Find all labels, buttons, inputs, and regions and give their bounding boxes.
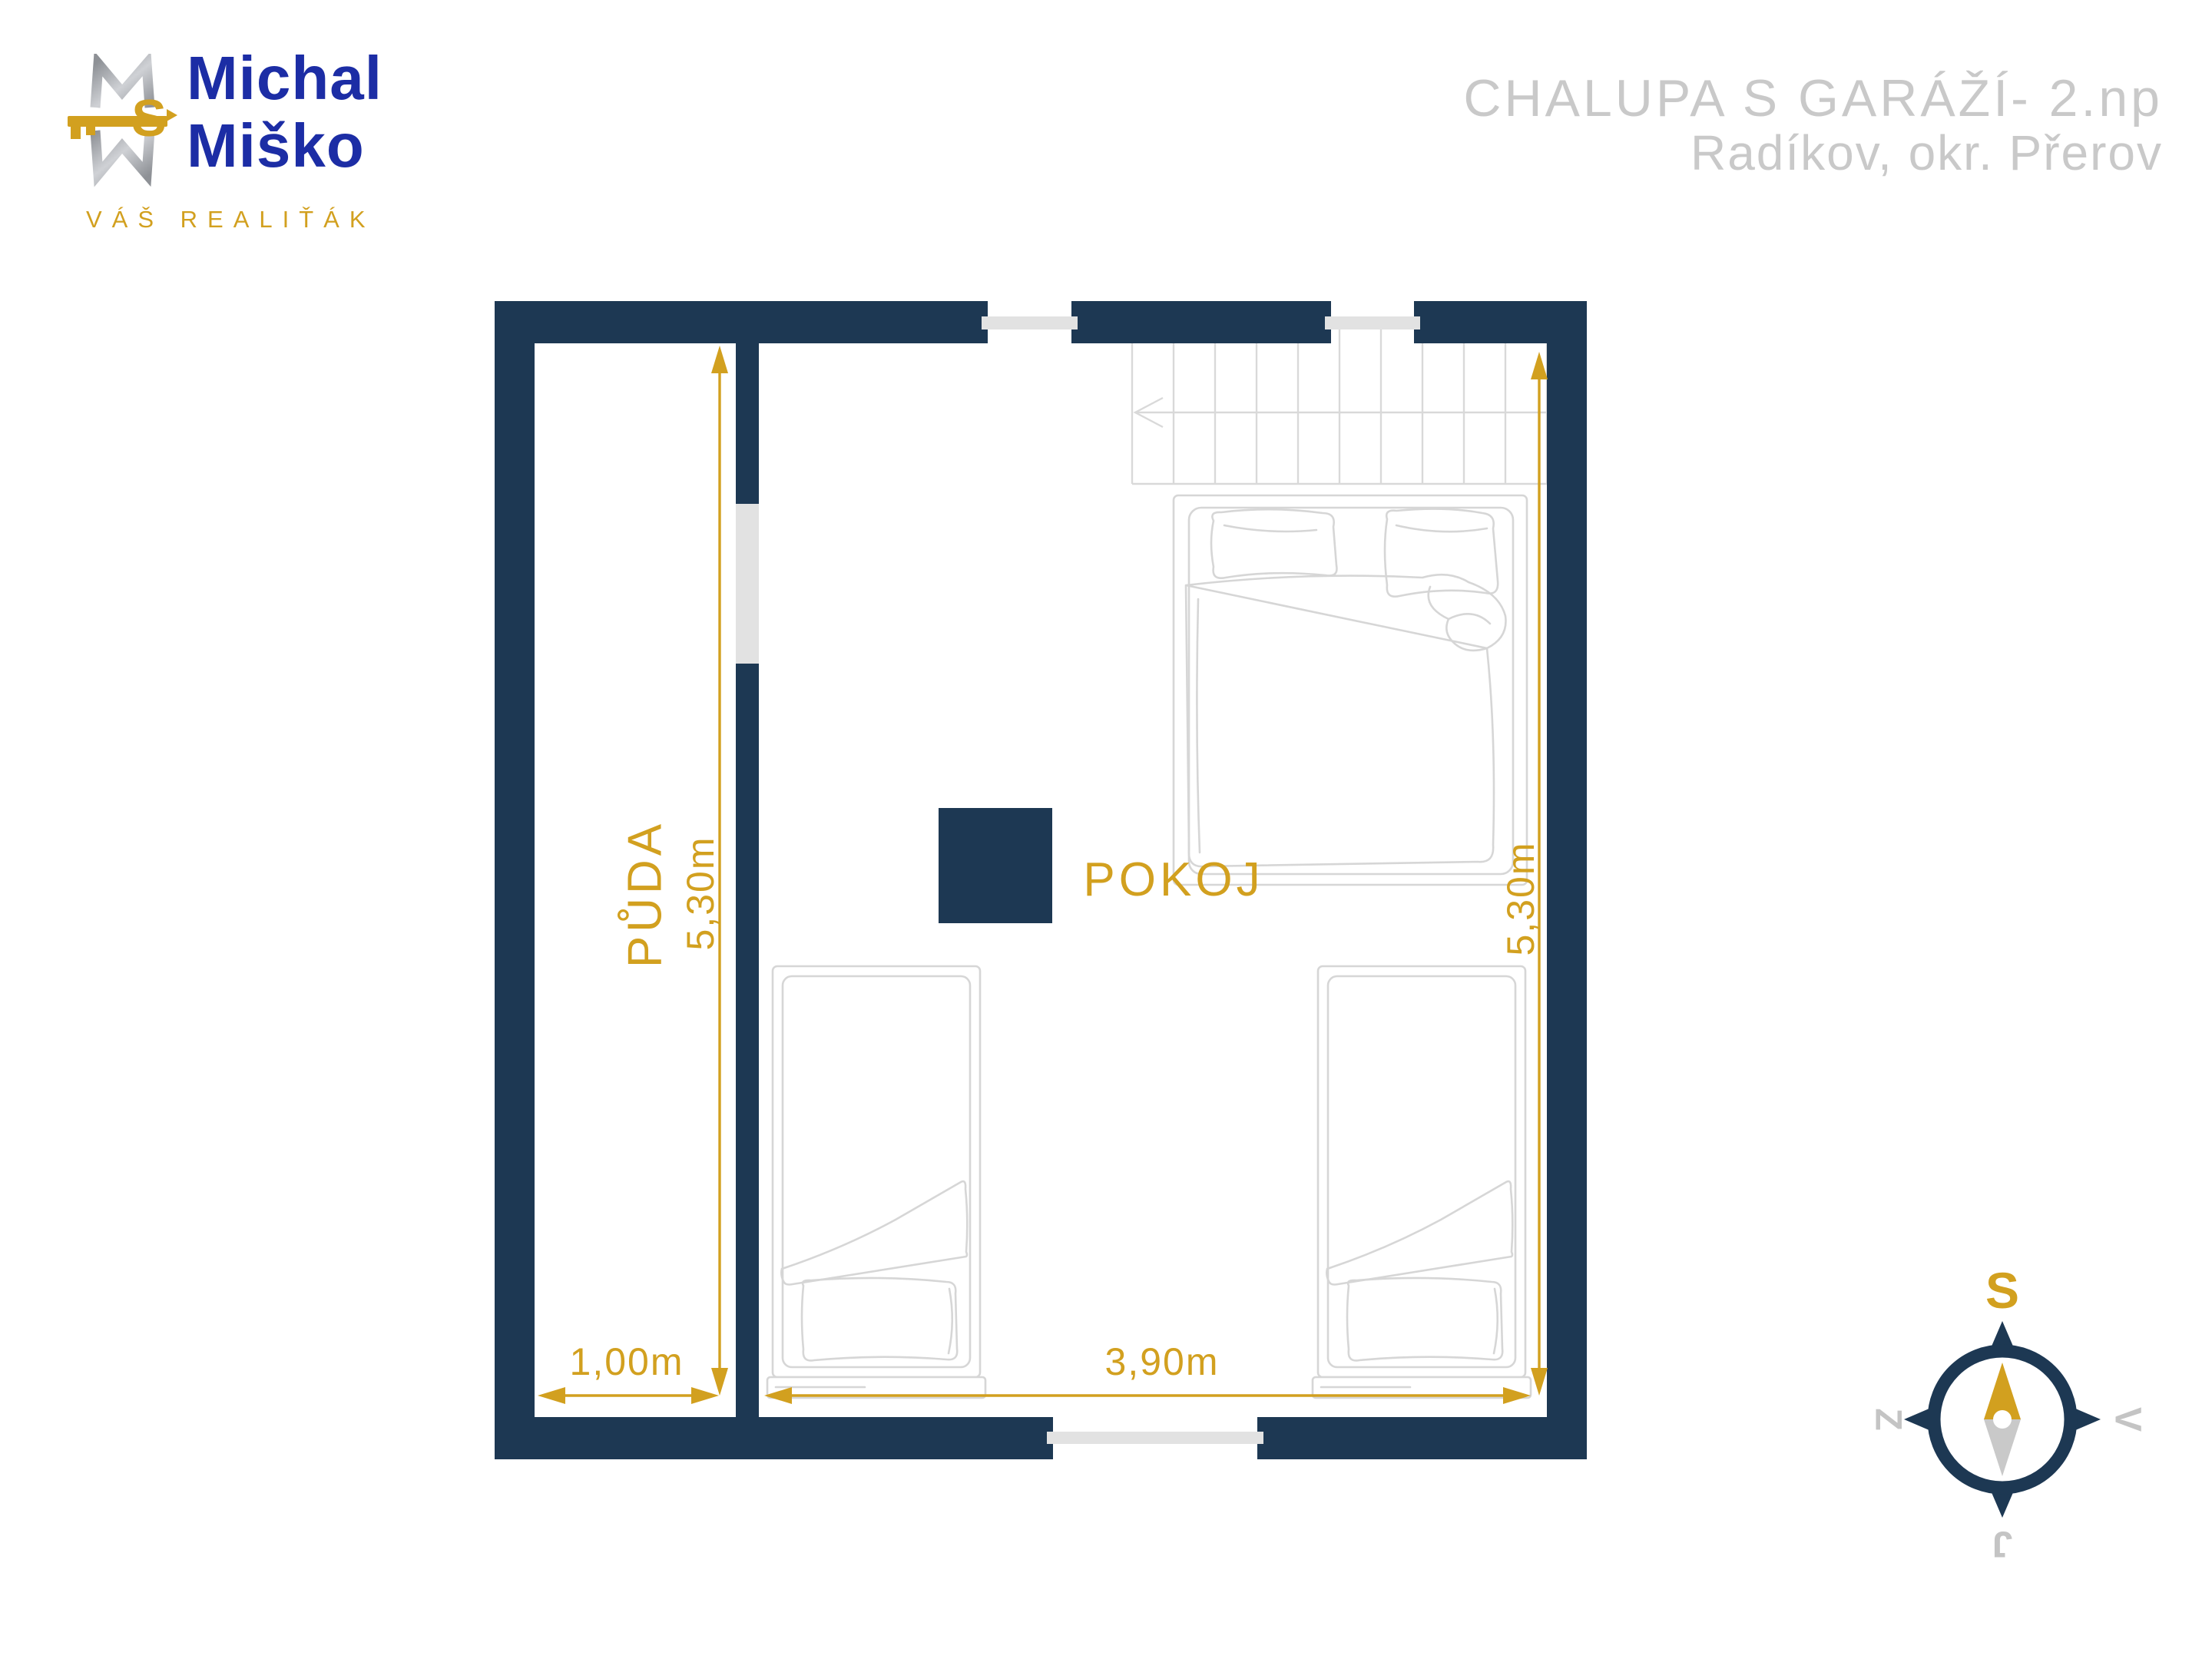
single-bed-left xyxy=(767,966,985,1398)
wall-bottom-segment-2 xyxy=(1257,1417,1587,1459)
dimension-label-pokoj-width: 3,90m xyxy=(1105,1340,1220,1383)
window-bottom xyxy=(1047,1432,1263,1444)
wall-left xyxy=(495,301,535,1459)
room-label-puda: PŮDA xyxy=(618,820,672,968)
single-bed-right xyxy=(1313,966,1531,1398)
chimney xyxy=(939,808,1052,923)
interior-opening xyxy=(736,504,759,664)
floorplan-page: S Michal Miško VÁŠ REALIŤÁK CHALUPA S GA… xyxy=(0,0,2212,1659)
window-top-left xyxy=(982,316,1078,329)
window-top-right xyxy=(1325,316,1420,329)
stairs-direction-arrow xyxy=(1135,398,1547,427)
dimension-label-puda-height: 5,30m xyxy=(679,836,722,951)
wall-top-segment-1 xyxy=(495,301,988,343)
compass-label-south: J xyxy=(1992,1524,2013,1565)
wall-top-segment-2 xyxy=(1071,301,1331,343)
compass-rose: S Z V J xyxy=(1868,1262,2148,1565)
room-label-pokoj: POKOJ xyxy=(1083,853,1263,906)
dimension-label-pokoj-height: 5,30m xyxy=(1499,842,1542,956)
double-bed xyxy=(1174,495,1527,885)
compass-label-north: S xyxy=(1985,1262,2019,1319)
wall-right xyxy=(1547,301,1587,1459)
dimension-label-puda-width: 1,00m xyxy=(570,1340,684,1383)
compass-hub xyxy=(1993,1410,2012,1429)
compass-label-east: V xyxy=(2108,1407,2148,1432)
floorplan-drawing: PŮDA 5,30m 5,30m 1,00m 3,90m POKOJ S Z V… xyxy=(0,0,2212,1659)
wall-interior-lower xyxy=(736,664,759,1417)
wall-bottom-segment-1 xyxy=(495,1417,1053,1459)
wall-interior-upper xyxy=(736,343,759,504)
compass-label-west: Z xyxy=(1868,1408,1909,1430)
